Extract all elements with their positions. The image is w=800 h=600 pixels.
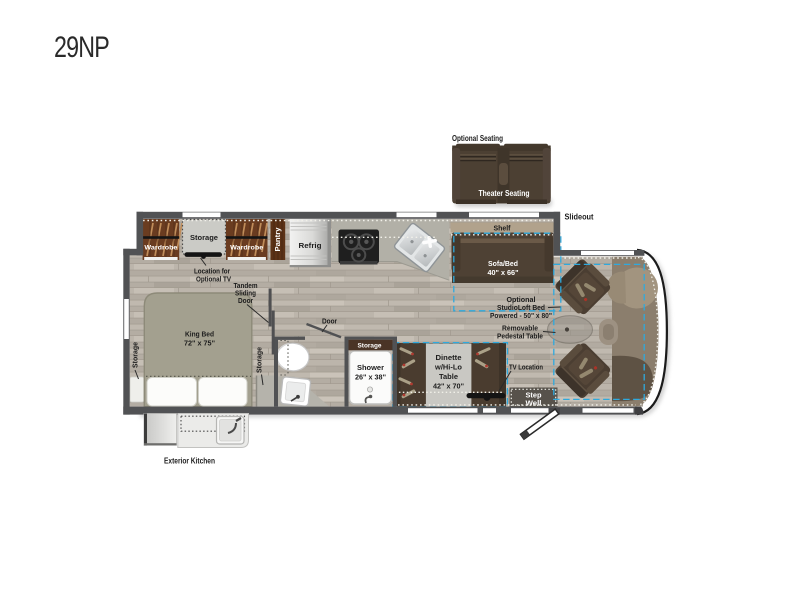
- svg-text:Door: Door: [238, 296, 253, 305]
- svg-text:Table: Table: [439, 372, 458, 381]
- svg-text:Storage: Storage: [358, 342, 382, 349]
- svg-text:Storage: Storage: [133, 342, 140, 368]
- svg-text:Powered - 50" x 80": Powered - 50" x 80": [490, 311, 552, 320]
- svg-text:Storage: Storage: [190, 233, 218, 242]
- svg-text:Well: Well: [526, 398, 542, 407]
- svg-text:Wardrobe: Wardrobe: [230, 244, 263, 251]
- svg-text:Pantry: Pantry: [275, 227, 282, 251]
- svg-text:Exterior Kitchen: Exterior Kitchen: [164, 457, 215, 466]
- svg-text:72" x 75": 72" x 75": [184, 339, 215, 348]
- svg-text:Refrig: Refrig: [299, 241, 322, 250]
- svg-text:Storage: Storage: [257, 347, 264, 373]
- svg-text:Pedestal Table: Pedestal Table: [497, 332, 543, 341]
- svg-text:Dinette: Dinette: [436, 353, 462, 362]
- svg-text:Slideout: Slideout: [565, 213, 594, 222]
- svg-text:Wardrobe: Wardrobe: [144, 244, 177, 251]
- svg-text:Theater Seating: Theater Seating: [479, 189, 530, 198]
- svg-text:40" x 66": 40" x 66": [488, 268, 519, 277]
- svg-text:Sofa/Bed: Sofa/Bed: [488, 259, 518, 268]
- svg-text:Optional TV: Optional TV: [196, 275, 231, 284]
- svg-text:Optional Seating: Optional Seating: [452, 134, 503, 143]
- svg-text:TV Location: TV Location: [509, 363, 543, 372]
- svg-text:King Bed: King Bed: [185, 330, 214, 339]
- svg-text:26" x 38": 26" x 38": [355, 373, 386, 382]
- svg-text:29NP: 29NP: [54, 31, 109, 64]
- svg-text:w/Hi-Lo: w/Hi-Lo: [434, 363, 462, 372]
- svg-text:42" x 70": 42" x 70": [433, 382, 464, 391]
- svg-text:Shower: Shower: [357, 363, 384, 372]
- svg-text:Door: Door: [322, 317, 337, 326]
- svg-text:Shelf: Shelf: [494, 224, 511, 233]
